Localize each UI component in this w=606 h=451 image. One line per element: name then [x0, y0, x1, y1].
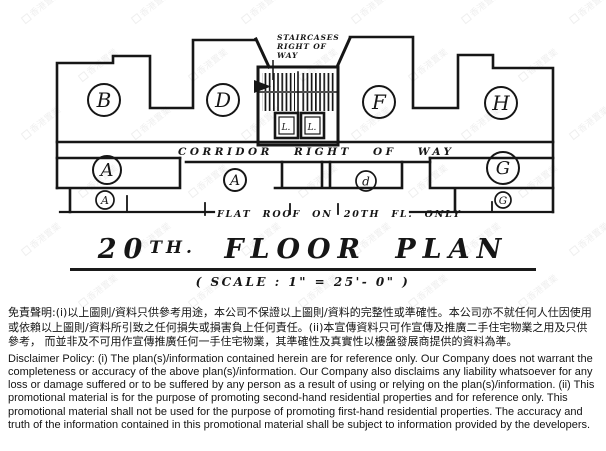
unit-label-g-small: G	[499, 195, 507, 207]
lift-boxes: L. L.	[275, 113, 324, 138]
disclaimer-english: Disclaimer Policy: (i) The plan(s)/infor…	[8, 353, 598, 432]
plan-title-ordinal: TH.	[149, 238, 196, 258]
plan-title: 20TH. FLOOR PLAN	[70, 234, 537, 271]
unit-label-f: F	[371, 90, 387, 114]
disclaimer-block: 免責聲明:(i)以上圖則/資料只供參考用途，本公司不保證以上圖則/資料的完整性或…	[8, 306, 598, 432]
unit-label-d: D	[214, 88, 231, 112]
staircase-label-line3: WAY	[277, 51, 298, 60]
title-block: 20TH. FLOOR PLAN ( SCALE : 1" = 25'- 0" …	[0, 234, 606, 289]
unit-label-a-small: A	[100, 194, 109, 207]
unit-label-h: H	[491, 91, 510, 115]
disclaimer-chinese: 免責聲明:(i)以上圖則/資料只供參考用途，本公司不保證以上圖則/資料的完整性或…	[8, 306, 598, 350]
corridor-bottom-walls	[57, 158, 553, 162]
unit-a-walls	[57, 158, 180, 212]
flat-roof-label: FLAT ROOF ON 20TH FL. ONLY	[216, 209, 462, 220]
unit-label-g-large: G	[496, 158, 510, 179]
unit-label-a-medium: A	[228, 173, 240, 189]
plan-scale: ( SCALE : 1" = 25'- 0" )	[0, 275, 606, 289]
staircase-label-line2: RIGHT OF	[276, 42, 327, 51]
floor-plan-drawing: L. L. STAIRCASES RIGHT OF WAY CORRIDOR R…	[0, 0, 606, 232]
unit-label-b: B	[96, 88, 112, 112]
unit-label-a-large: A	[99, 160, 114, 181]
wall-outline-right	[350, 37, 553, 212]
plan-title-number: 20	[98, 234, 150, 265]
lift-l1-label: L.	[281, 123, 291, 133]
staircase-label-line1: STAIRCASES	[277, 33, 340, 42]
plan-title-text: FLOOR PLAN	[224, 234, 508, 265]
unit-label-d-small: d	[362, 175, 370, 189]
lift-l2-label: L.	[307, 123, 317, 133]
wall-outline-left	[57, 40, 256, 188]
corridor-label: CORRIDOR RIGHT OF WAY	[178, 146, 455, 158]
floor-plan-page: 香港置業香港置業香港置業香港置業香港置業香港置業香港置業香港置業香港置業香港置業…	[0, 0, 606, 451]
lower-middle-walls	[275, 162, 402, 188]
